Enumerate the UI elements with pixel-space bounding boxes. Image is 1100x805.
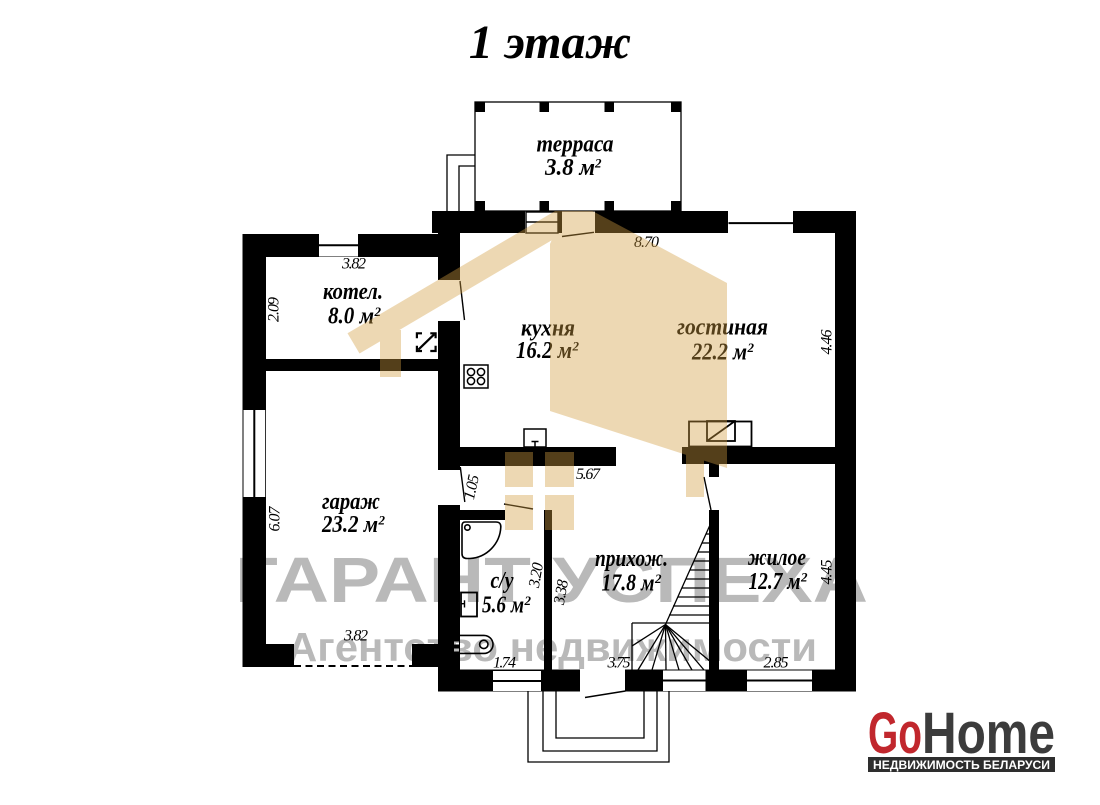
svg-text:23.2 м: 23.2 м — [321, 512, 378, 538]
svg-text:2.09: 2.09 — [266, 297, 283, 322]
svg-text:4.46: 4.46 — [819, 330, 836, 355]
svg-text:котел.: котел. — [323, 279, 383, 305]
svg-text:2: 2 — [747, 340, 755, 355]
svg-text:2: 2 — [378, 513, 386, 528]
svg-text:НЕДВИЖИМОСТЬ БЕЛАРУСИ: НЕДВИЖИМОСТЬ БЕЛАРУСИ — [873, 758, 1050, 772]
svg-text:6.07: 6.07 — [267, 506, 284, 532]
svg-text:Агентство недвижимости: Агентство недвижимости — [287, 624, 817, 670]
svg-text:Home: Home — [922, 701, 1055, 766]
svg-text:3.82: 3.82 — [341, 256, 366, 273]
svg-text:Go: Go — [868, 701, 922, 766]
svg-text:5.67: 5.67 — [576, 466, 601, 483]
svg-text:2: 2 — [594, 156, 602, 171]
svg-text:1 этаж: 1 этаж — [469, 16, 631, 69]
svg-text:ГАРАНТ УСПЕХА: ГАРАНТ УСПЕХА — [235, 544, 868, 616]
svg-text:терраса: терраса — [537, 132, 614, 158]
svg-text:3.8 м: 3.8 м — [544, 155, 595, 181]
